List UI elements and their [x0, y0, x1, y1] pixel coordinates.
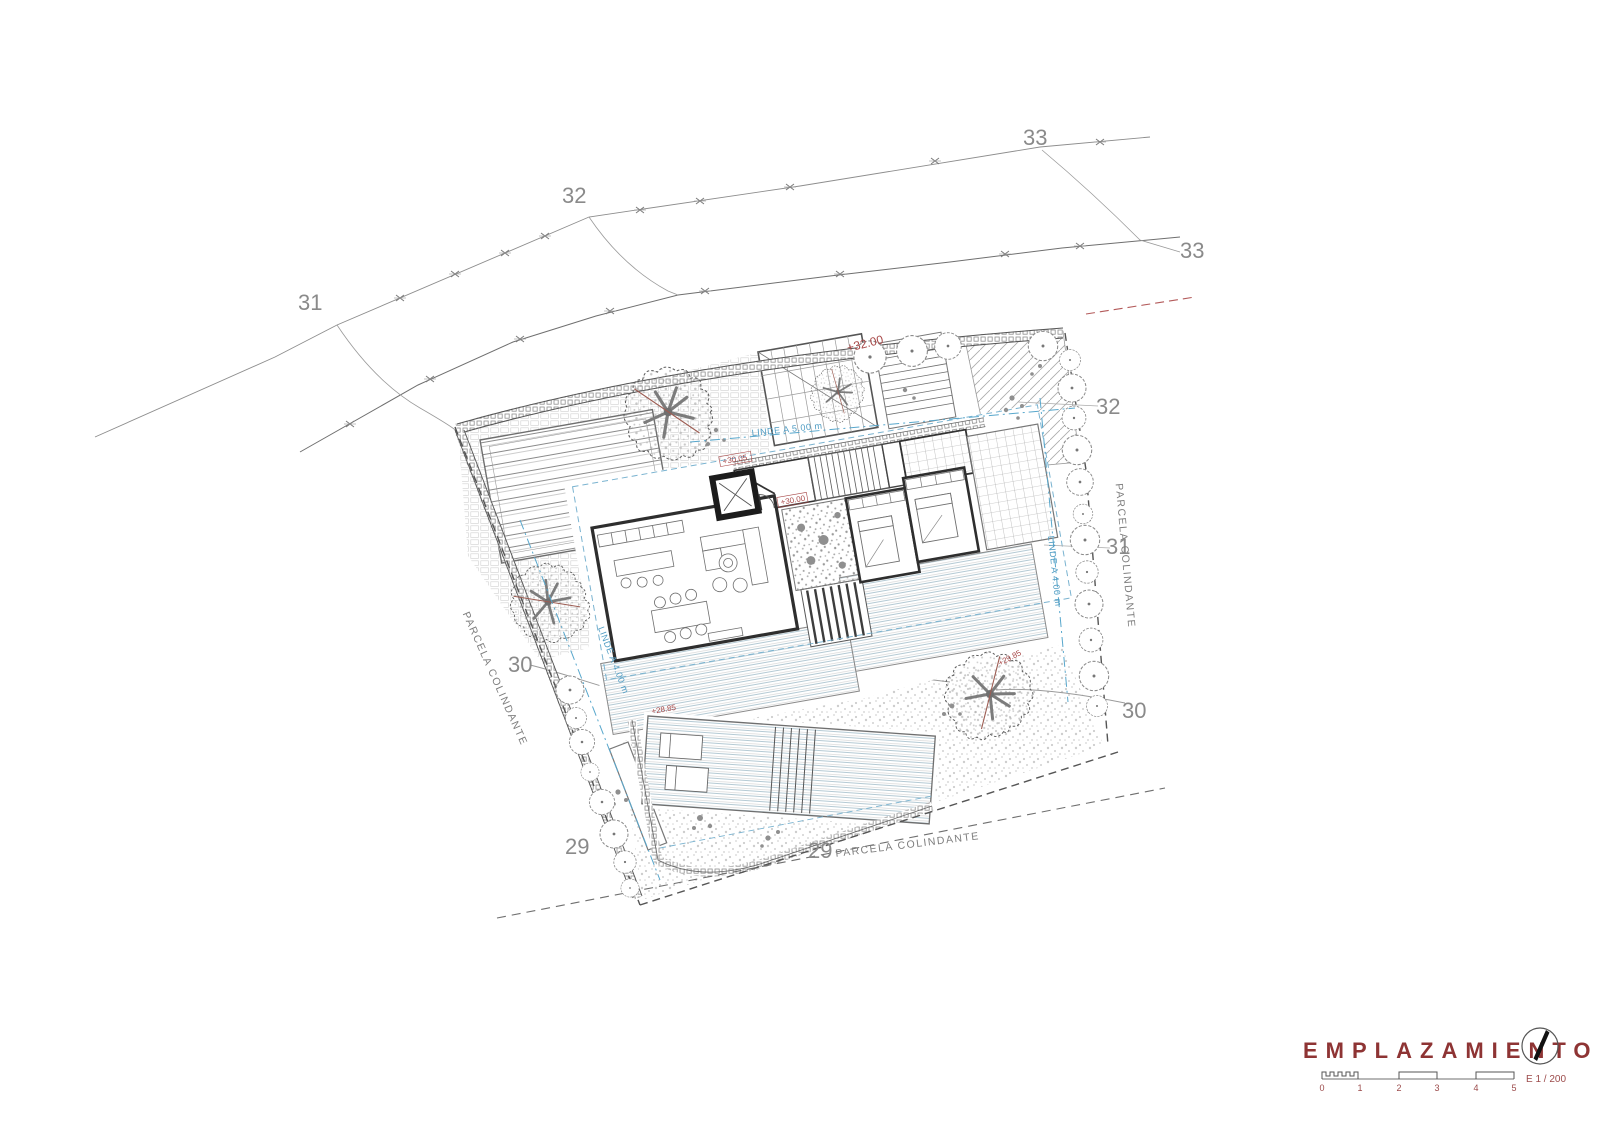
- drawing-sheet: 31 32 33 33 30: [0, 0, 1600, 1131]
- scale-bar: 0 1 2 3 4 5 E 1 / 200: [1319, 1072, 1566, 1093]
- contour-label-30-right: 30: [1122, 698, 1146, 723]
- contour-label-33-right: 33: [1180, 238, 1204, 263]
- contour-label-32-right: 32: [1096, 394, 1120, 419]
- contour-label-29-left: 29: [565, 834, 589, 859]
- scale-tick-2: 2: [1396, 1083, 1401, 1093]
- contour-label-33-top: 33: [1023, 125, 1047, 150]
- title-block: EMPLAZAMIENTO 0 1 2 3 4 5 E 1 / 200: [1303, 1028, 1598, 1093]
- bedroom-2: [903, 467, 979, 561]
- scale-label: E 1 / 200: [1526, 1074, 1566, 1085]
- contour-label-31-left: 31: [298, 290, 322, 315]
- sun-lounger: [659, 733, 703, 760]
- parcela-label-left: PARCELA COLINDANTE: [460, 610, 530, 748]
- scale-tick-3: 3: [1434, 1083, 1439, 1093]
- garden-steps: [801, 579, 872, 647]
- scale-tick-0: 0: [1319, 1083, 1324, 1093]
- scale-tick-5: 5: [1511, 1083, 1516, 1093]
- site-plan-canvas: 31 32 33 33 30: [0, 0, 1600, 1131]
- red-dashed-line: [1086, 297, 1195, 314]
- scale-tick-1: 1: [1357, 1083, 1362, 1093]
- large-tree: [624, 367, 712, 460]
- contour-label-29-bottom: 29: [808, 838, 832, 863]
- contour-label-30-left: 30: [508, 652, 532, 677]
- contour-label-32-top: 32: [562, 183, 586, 208]
- sheet-title: EMPLAZAMIENTO: [1303, 1038, 1598, 1063]
- sun-lounger: [665, 765, 709, 792]
- scale-tick-4: 4: [1473, 1083, 1478, 1093]
